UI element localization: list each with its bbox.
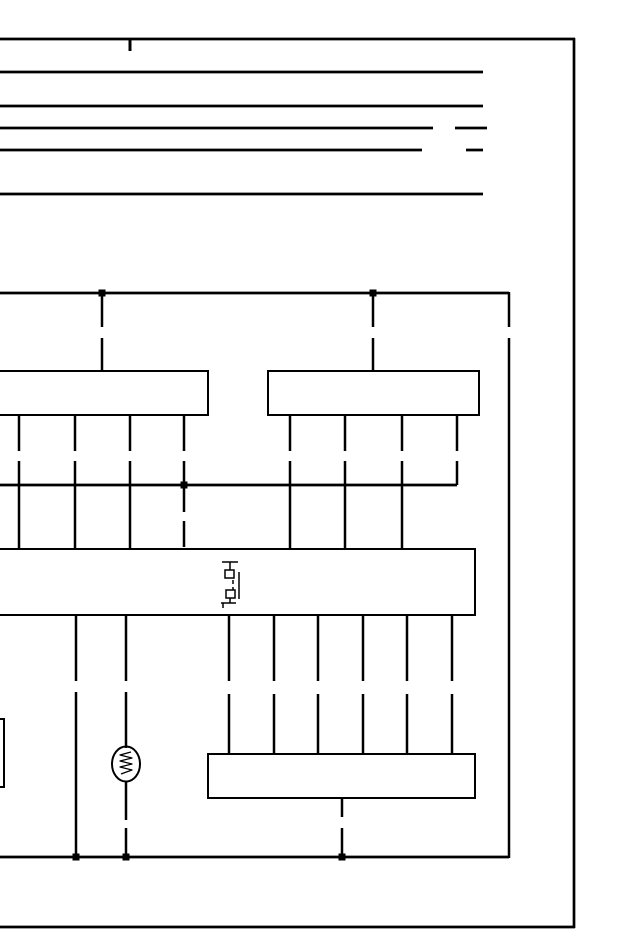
main-connector-box bbox=[0, 549, 475, 615]
junction-dot-feed-right bbox=[370, 290, 377, 297]
bulb-lamp-body bbox=[112, 747, 140, 782]
junction-dot-ground-3 bbox=[339, 854, 346, 861]
diagram-canvas bbox=[0, 0, 640, 950]
junction-dot-ground-1 bbox=[73, 854, 80, 861]
inline-connector-terminal-upper bbox=[225, 570, 234, 578]
junction-dot-feed-left bbox=[99, 290, 106, 297]
connector-box-right bbox=[268, 371, 479, 415]
inline-connector-terminal-lower bbox=[226, 590, 235, 598]
schematic-page bbox=[0, 0, 640, 950]
connector-box-left bbox=[0, 371, 208, 415]
bottom-connector-box bbox=[208, 754, 475, 798]
junction-dot-ground-2 bbox=[123, 854, 130, 861]
bulb-lamp-filament bbox=[120, 752, 132, 774]
left-edge-partial-box bbox=[0, 719, 4, 787]
